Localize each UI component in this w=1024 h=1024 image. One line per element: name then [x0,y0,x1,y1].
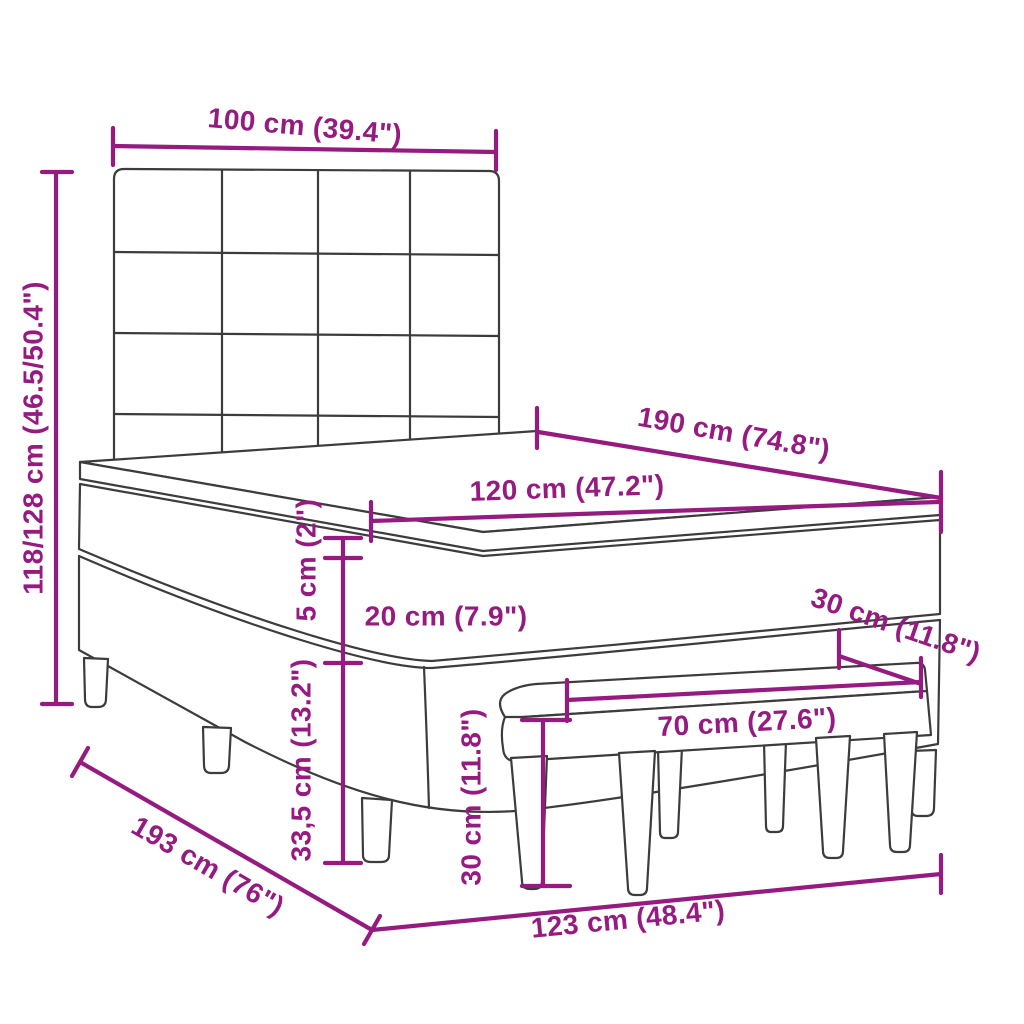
dimension-label-base-height: 33,5 cm (13.2") [286,659,317,862]
bench-leg [619,751,655,895]
bench-rear-leg [658,747,682,838]
dimension-label-floor-width: 123 cm (48.4") [530,894,727,944]
bed-leg [362,798,392,862]
bench-leg [884,732,917,852]
dimension-label-bench-height: 30 cm (11.8") [456,708,487,885]
dimension-label-headboard-width: 100 cm (39.4") [207,102,404,150]
dimension-label-mattress-height: 20 cm (7.9") [365,601,528,632]
headboard [114,169,499,464]
bed-leg [84,658,108,707]
bench-leg [816,736,850,858]
dimension-total-height: 118/128 cm (46.5/50.4") [18,172,73,704]
bench-rear-leg [764,741,786,832]
dimension-label-floor-depth: 193 cm (76") [126,810,289,922]
bed-leg [203,727,231,773]
dimension-label-total-height: 118/128 cm (46.5/50.4") [18,281,49,595]
diagram-canvas: 100 cm (39.4") 118/128 cm (46.5/50.4") 1… [0,0,1024,1024]
dimension-diagram: 100 cm (39.4") 118/128 cm (46.5/50.4") 1… [0,0,1024,1024]
dimension-label-topper-thickness: 5 cm (2") [291,499,322,622]
dimension-headboard-width: 100 cm (39.4") [113,102,496,170]
